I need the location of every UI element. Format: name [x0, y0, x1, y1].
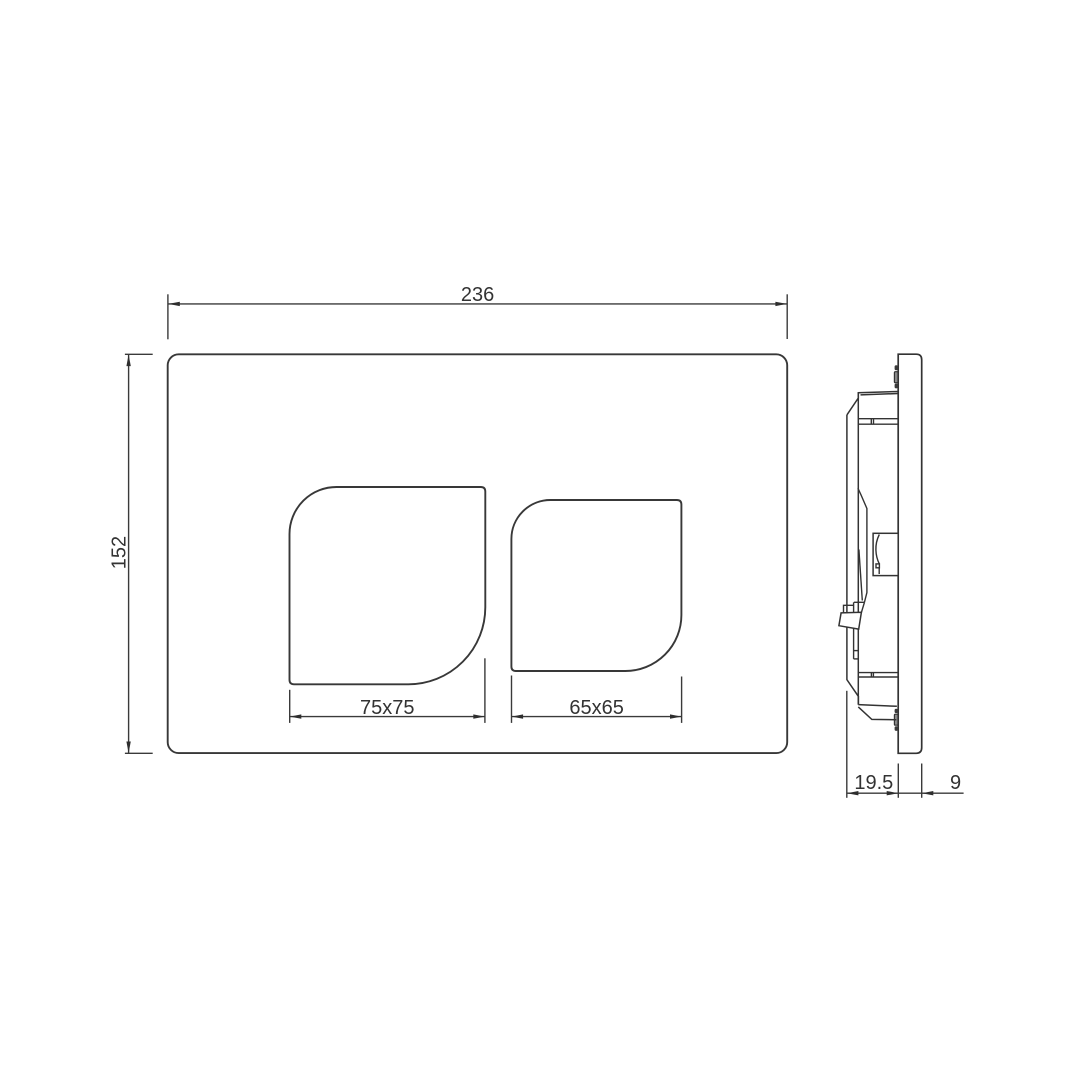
svg-text:9: 9: [950, 772, 961, 794]
svg-text:236: 236: [461, 284, 494, 306]
svg-text:65x65: 65x65: [569, 697, 624, 719]
svg-text:19.5: 19.5: [854, 772, 893, 794]
svg-text:152: 152: [109, 536, 131, 569]
svg-text:75x75: 75x75: [360, 697, 415, 719]
